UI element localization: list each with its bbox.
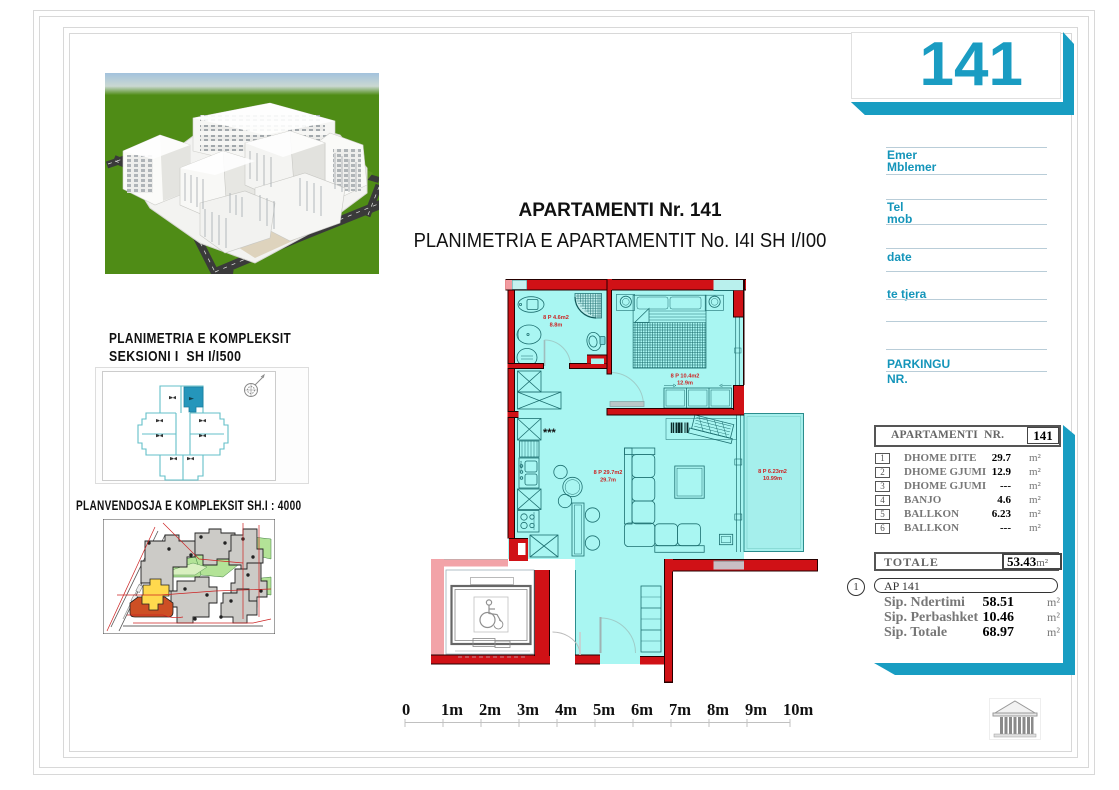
svg-text:8 P 6.23m2: 8 P 6.23m2 (758, 469, 787, 475)
svg-text:8 P 4.6m2: 8 P 4.6m2 (543, 315, 569, 321)
svg-text:***: *** (543, 427, 557, 439)
svg-text:29.7m: 29.7m (600, 478, 616, 484)
svg-text:8.8m: 8.8m (550, 323, 563, 329)
svg-text:kuzina: kuzina (519, 461, 523, 471)
svg-text:12.9m: 12.9m (677, 381, 693, 387)
svg-text:8 P 10.4m2: 8 P 10.4m2 (671, 374, 700, 380)
svg-text:10.99m: 10.99m (763, 476, 782, 482)
svg-text:8 P 29.7m2: 8 P 29.7m2 (594, 470, 623, 476)
